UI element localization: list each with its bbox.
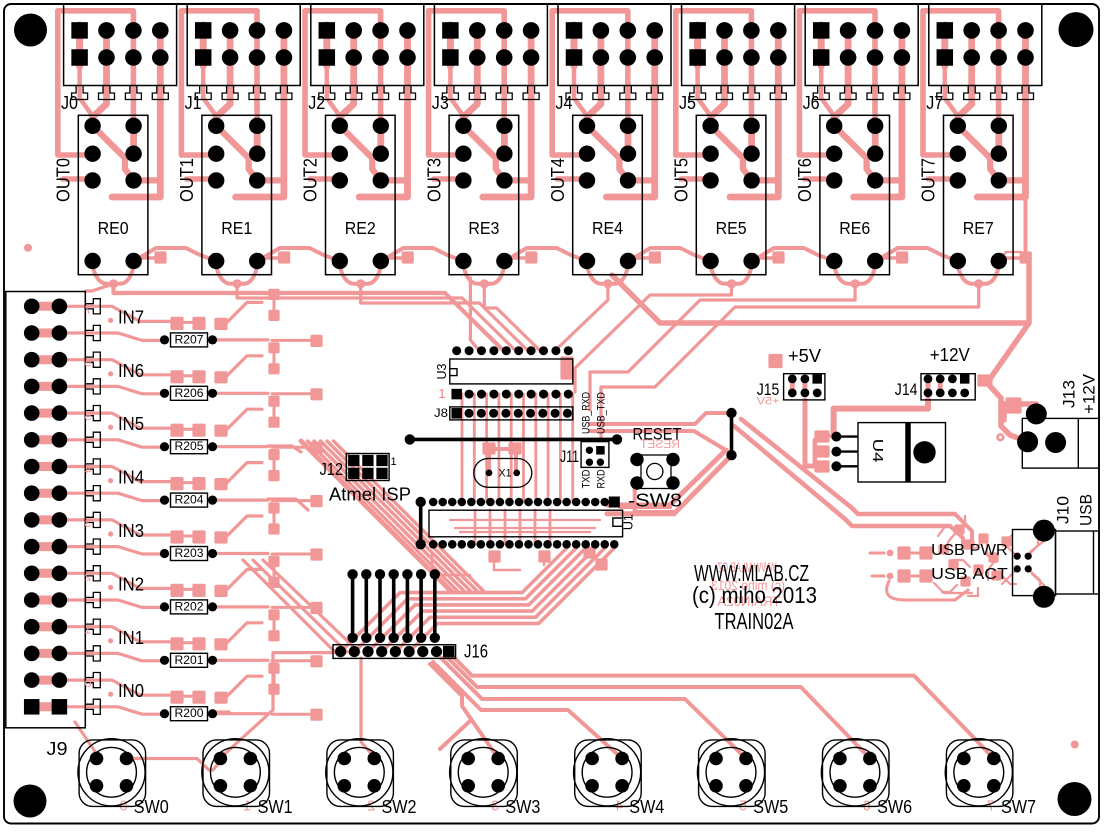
svg-text:4: 4 — [85, 465, 92, 477]
svg-text:RE7: RE7 — [963, 218, 994, 238]
svg-text:SW7: SW7 — [1001, 796, 1036, 817]
svg-text:R206: R206 — [175, 388, 204, 400]
svg-text:IN4: IN4 — [118, 467, 144, 488]
svg-text:SW4: SW4 — [629, 796, 664, 817]
svg-text:SW0: SW0 — [134, 796, 169, 817]
svg-text:6: 6 — [85, 358, 92, 370]
svg-text:RE1: RE1 — [221, 218, 252, 238]
svg-text:1: 1 — [390, 456, 396, 468]
svg-text:U4: U4 — [869, 439, 886, 463]
svg-text:IN5: IN5 — [118, 413, 144, 434]
svg-text:USB: USB — [1077, 494, 1096, 526]
svg-text:1: 1 — [85, 625, 92, 637]
svg-text:SW3: SW3 — [505, 796, 540, 817]
svg-text:IN0: IN0 — [118, 680, 144, 701]
svg-text:IN6: IN6 — [118, 360, 144, 381]
svg-text:+5V: +5V — [788, 346, 821, 366]
svg-text:1: 1 — [438, 386, 445, 401]
svg-text:X1: X1 — [499, 468, 512, 480]
svg-text:RE5: RE5 — [716, 218, 747, 238]
svg-text:R204: R204 — [175, 495, 205, 507]
svg-text:7: 7 — [85, 304, 92, 316]
svg-text:OUT1: OUT1 — [177, 158, 197, 202]
svg-text:SW2: SW2 — [382, 796, 417, 817]
svg-text:J14: J14 — [895, 380, 918, 399]
svg-text:RE2: RE2 — [345, 218, 376, 238]
svg-text:RE4: RE4 — [592, 218, 623, 238]
svg-text:OUT0: OUT0 — [54, 158, 74, 202]
svg-text:IN3: IN3 — [118, 520, 144, 541]
svg-text:J6: J6 — [803, 93, 820, 113]
svg-text:J16: J16 — [464, 642, 488, 662]
svg-text:USB_TXD: USB_TXD — [595, 392, 607, 434]
svg-text:R201: R201 — [175, 655, 204, 667]
svg-text:OUT2: OUT2 — [301, 158, 321, 202]
svg-text:USB PWR: USB PWR — [931, 542, 1008, 559]
svg-text:R203: R203 — [175, 548, 204, 560]
svg-text:J11: J11 — [560, 448, 579, 466]
svg-text:R205: R205 — [175, 441, 204, 453]
svg-text:0: 0 — [85, 678, 92, 690]
svg-text:J5: J5 — [679, 93, 696, 113]
svg-text:RE3: RE3 — [468, 218, 499, 238]
svg-text:SW5: SW5 — [753, 796, 788, 817]
svg-text:RE6: RE6 — [839, 218, 870, 238]
svg-text:R202: R202 — [175, 601, 204, 613]
svg-text:J2: J2 — [308, 93, 325, 113]
svg-text:+12V: +12V — [930, 345, 970, 365]
svg-text:U3: U3 — [435, 363, 449, 379]
svg-text:IN1: IN1 — [118, 627, 144, 648]
svg-text:J1: J1 — [185, 93, 202, 113]
svg-text:J9: J9 — [47, 739, 68, 759]
svg-text:OUT5: OUT5 — [672, 158, 692, 202]
svg-text:SW1: SW1 — [258, 796, 293, 817]
svg-text:U1: U1 — [622, 514, 636, 530]
svg-text:J13: J13 — [1060, 380, 1079, 408]
svg-text:5: 5 — [85, 411, 92, 423]
svg-text:RXD: RXD — [595, 469, 607, 488]
svg-text:RESET: RESET — [633, 424, 682, 443]
svg-text:TRAIN02A: TRAIN02A — [715, 608, 794, 634]
svg-text:-SW8: -SW8 — [628, 491, 682, 511]
svg-text:USB ACT: USB ACT — [931, 566, 1008, 583]
svg-text:2: 2 — [85, 571, 92, 583]
svg-text:OUT3: OUT3 — [424, 158, 444, 202]
svg-text:J12: J12 — [320, 459, 344, 479]
svg-text:J7: J7 — [926, 93, 943, 113]
svg-text:OUT6: OUT6 — [795, 158, 815, 202]
svg-text:IN2: IN2 — [118, 573, 144, 594]
svg-text:J8: J8 — [434, 406, 448, 420]
svg-text:J10: J10 — [1054, 496, 1073, 524]
svg-text:J4: J4 — [555, 93, 572, 113]
svg-text:OUT7: OUT7 — [919, 158, 939, 202]
svg-text:J3: J3 — [432, 93, 449, 113]
svg-text:J0: J0 — [61, 93, 78, 113]
svg-text:R207: R207 — [175, 334, 204, 346]
svg-text:Atmel ISP: Atmel ISP — [329, 485, 411, 505]
svg-text:TXD: TXD — [581, 469, 593, 488]
svg-text:IN7: IN7 — [118, 306, 144, 327]
svg-text:RE0: RE0 — [98, 218, 129, 238]
svg-text:R200: R200 — [175, 708, 204, 720]
svg-text:+12V: +12V — [1080, 373, 1099, 414]
svg-text:J15: J15 — [757, 380, 780, 399]
svg-text:USB_RXD: USB_RXD — [581, 392, 593, 434]
svg-text:SW6: SW6 — [877, 796, 912, 817]
svg-text:(c) miho 2013: (c) miho 2013 — [692, 582, 817, 608]
svg-text:OUT4: OUT4 — [548, 158, 568, 202]
svg-text:3: 3 — [85, 518, 92, 530]
